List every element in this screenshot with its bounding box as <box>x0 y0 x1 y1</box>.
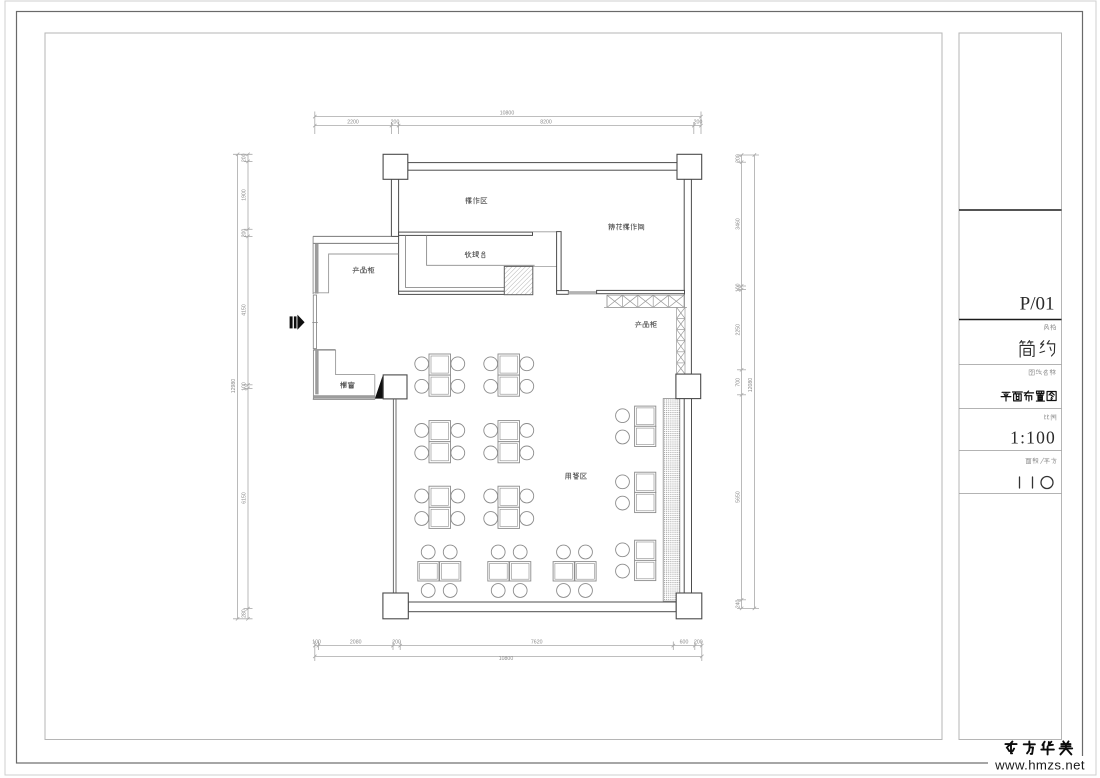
svg-text:200: 200 <box>694 119 703 125</box>
svg-text:12980: 12980 <box>231 379 237 394</box>
svg-text:100: 100 <box>735 283 741 292</box>
svg-text:10800: 10800 <box>499 656 514 662</box>
svg-text:200: 200 <box>735 154 741 163</box>
svg-text:1:100: 1:100 <box>1010 428 1056 448</box>
svg-text:200: 200 <box>392 640 401 646</box>
svg-text:3460: 3460 <box>735 218 741 230</box>
svg-text:2200: 2200 <box>347 119 359 125</box>
svg-text:P/01: P/01 <box>1020 294 1055 315</box>
svg-text:4150: 4150 <box>242 304 248 316</box>
svg-text:8200: 8200 <box>540 119 552 125</box>
svg-text:5650: 5650 <box>735 491 741 503</box>
svg-text:7620: 7620 <box>531 640 543 646</box>
svg-text:2250: 2250 <box>735 324 741 336</box>
svg-text:6150: 6150 <box>242 492 248 504</box>
svg-text:200: 200 <box>694 640 703 646</box>
svg-text:240: 240 <box>735 599 741 608</box>
svg-text:www.hmzs.net: www.hmzs.net <box>994 758 1085 773</box>
svg-text:100: 100 <box>312 640 321 646</box>
svg-text:100: 100 <box>242 382 248 391</box>
svg-text:12080: 12080 <box>748 378 754 393</box>
svg-text:600: 600 <box>680 640 689 646</box>
svg-text:200: 200 <box>242 229 248 238</box>
svg-text:200: 200 <box>391 119 400 125</box>
svg-text:280: 280 <box>242 609 248 618</box>
svg-text:1900: 1900 <box>242 189 248 201</box>
svg-text:700: 700 <box>735 378 741 387</box>
svg-text:10800: 10800 <box>500 110 515 116</box>
svg-text:2080: 2080 <box>350 640 362 646</box>
svg-text:200: 200 <box>242 153 248 162</box>
